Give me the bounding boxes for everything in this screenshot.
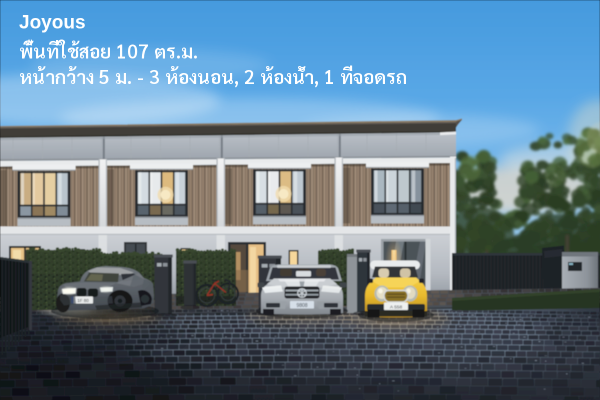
svg-text:Joyous: Joyous bbox=[19, 13, 86, 34]
svg-text:A 558: A 558 bbox=[390, 305, 403, 311]
svg-text:9808: 9808 bbox=[296, 303, 307, 309]
svg-text:1F 80: 1F 80 bbox=[77, 298, 89, 303]
